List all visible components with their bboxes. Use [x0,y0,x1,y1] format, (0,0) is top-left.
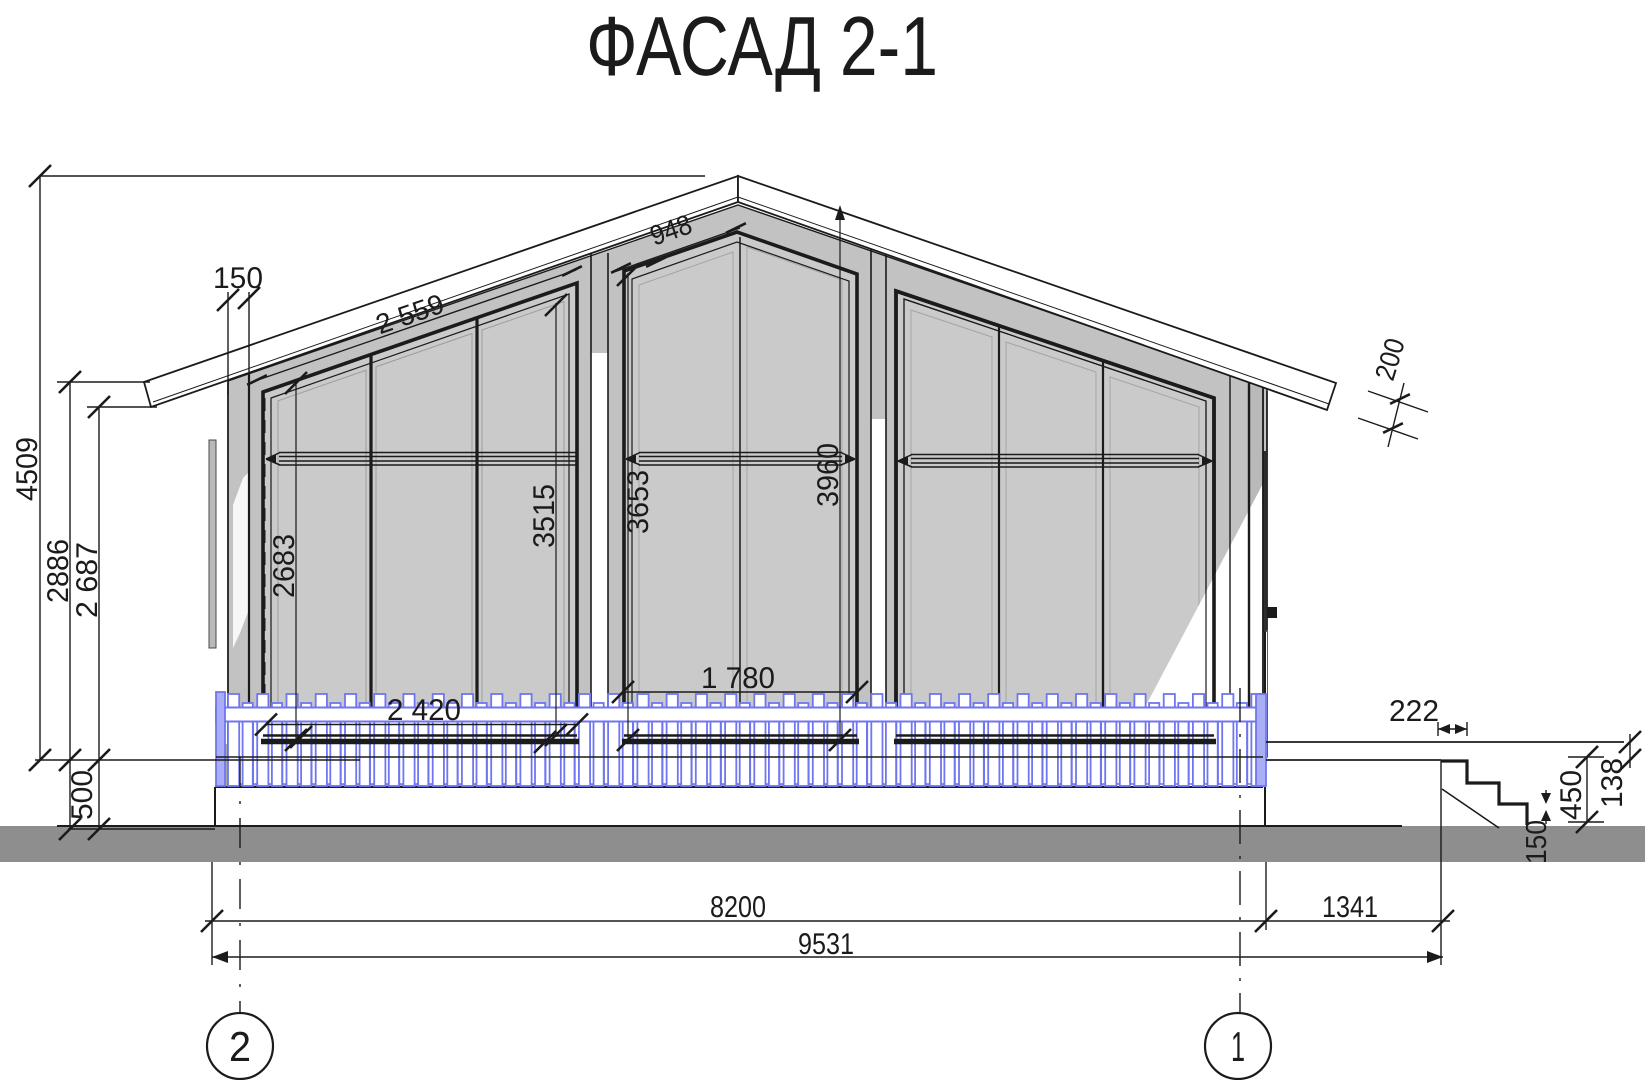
svg-text:500: 500 [66,770,99,820]
svg-text:2: 2 [229,1023,251,1070]
svg-text:2 687: 2 687 [71,542,104,618]
svg-text:2 420: 2 420 [387,694,461,727]
svg-text:222: 222 [1389,695,1439,728]
svg-text:1: 1 [1231,1023,1245,1070]
svg-text:ФАСАД 2-1: ФАСАД 2-1 [586,0,938,93]
svg-text:150: 150 [1521,820,1553,864]
svg-text:2683: 2683 [268,534,301,598]
svg-text:3653: 3653 [622,470,655,534]
svg-text:1 780: 1 780 [701,662,775,695]
svg-text:4509: 4509 [11,437,44,501]
svg-text:3960: 3960 [812,443,845,507]
svg-text:9531: 9531 [798,928,854,961]
svg-text:1341: 1341 [1322,891,1378,924]
svg-text:450: 450 [1555,770,1588,820]
svg-text:150: 150 [213,262,263,295]
svg-text:3515: 3515 [528,484,561,548]
svg-text:138: 138 [1596,758,1629,808]
svg-text:8200: 8200 [710,891,766,924]
